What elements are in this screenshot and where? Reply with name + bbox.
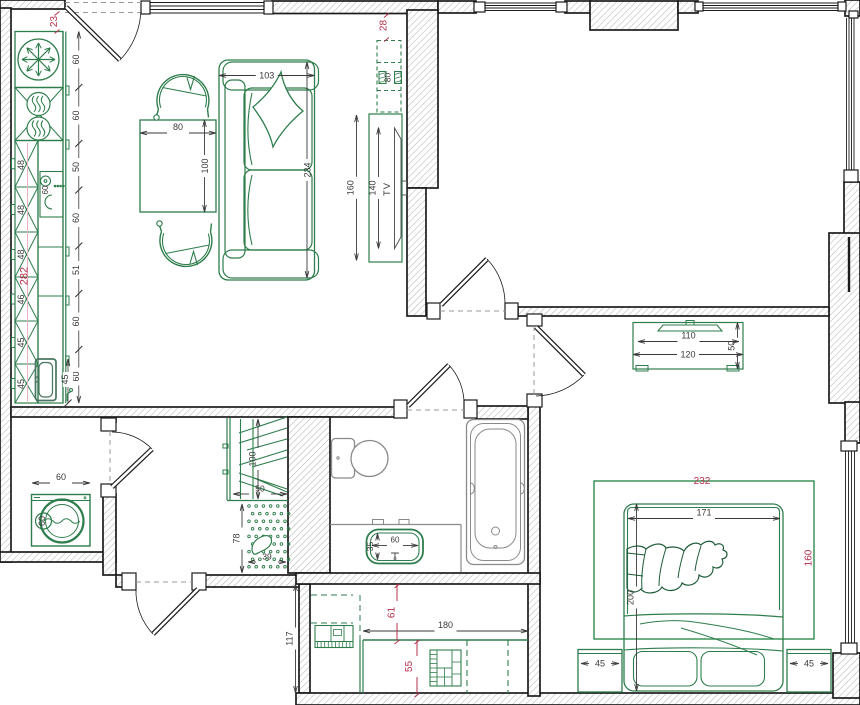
svg-text:51: 51: [71, 265, 81, 275]
svg-text:28: 28: [379, 20, 390, 32]
svg-text:100: 100: [200, 158, 210, 173]
svg-text:46: 46: [16, 294, 26, 304]
svg-text:60: 60: [71, 316, 81, 326]
svg-text:282: 282: [19, 267, 31, 285]
svg-text:100: 100: [248, 451, 258, 466]
svg-text:48: 48: [16, 249, 26, 259]
svg-text:50: 50: [71, 162, 81, 172]
svg-text:45: 45: [16, 379, 26, 389]
svg-text:103: 103: [259, 71, 274, 81]
svg-text:60: 60: [41, 185, 50, 194]
svg-text:232: 232: [694, 476, 711, 487]
svg-text:45: 45: [16, 337, 26, 347]
svg-text:180: 180: [438, 620, 453, 630]
svg-text:200: 200: [626, 590, 636, 605]
svg-text:45: 45: [595, 659, 605, 669]
svg-text:60: 60: [71, 110, 81, 120]
svg-text:45: 45: [804, 659, 814, 669]
svg-text:80: 80: [173, 122, 183, 132]
svg-text:TV: TV: [382, 182, 393, 196]
svg-text:117: 117: [285, 631, 295, 645]
svg-text:50: 50: [255, 484, 265, 494]
svg-text:48: 48: [16, 160, 26, 170]
svg-text:78: 78: [232, 533, 242, 543]
svg-text:60: 60: [56, 472, 66, 482]
svg-text:60: 60: [71, 213, 81, 223]
svg-text:39: 39: [262, 552, 272, 562]
svg-text:48: 48: [16, 205, 26, 215]
svg-text:234: 234: [303, 162, 313, 177]
svg-text:60: 60: [71, 54, 81, 64]
svg-text:50: 50: [727, 341, 737, 351]
svg-text:60: 60: [391, 536, 400, 545]
svg-text:110: 110: [681, 331, 695, 341]
svg-text:35: 35: [365, 542, 375, 552]
svg-text:171: 171: [696, 508, 711, 518]
svg-text:45: 45: [60, 374, 70, 384]
svg-text:120: 120: [680, 350, 695, 360]
svg-text:160: 160: [346, 180, 356, 195]
svg-text:55: 55: [404, 661, 415, 673]
svg-text:61: 61: [387, 607, 398, 619]
svg-text:60: 60: [37, 516, 47, 526]
svg-text:23: 23: [49, 16, 60, 28]
svg-text:160: 160: [804, 549, 815, 566]
svg-text:140: 140: [368, 180, 378, 195]
svg-text:80: 80: [383, 73, 393, 83]
